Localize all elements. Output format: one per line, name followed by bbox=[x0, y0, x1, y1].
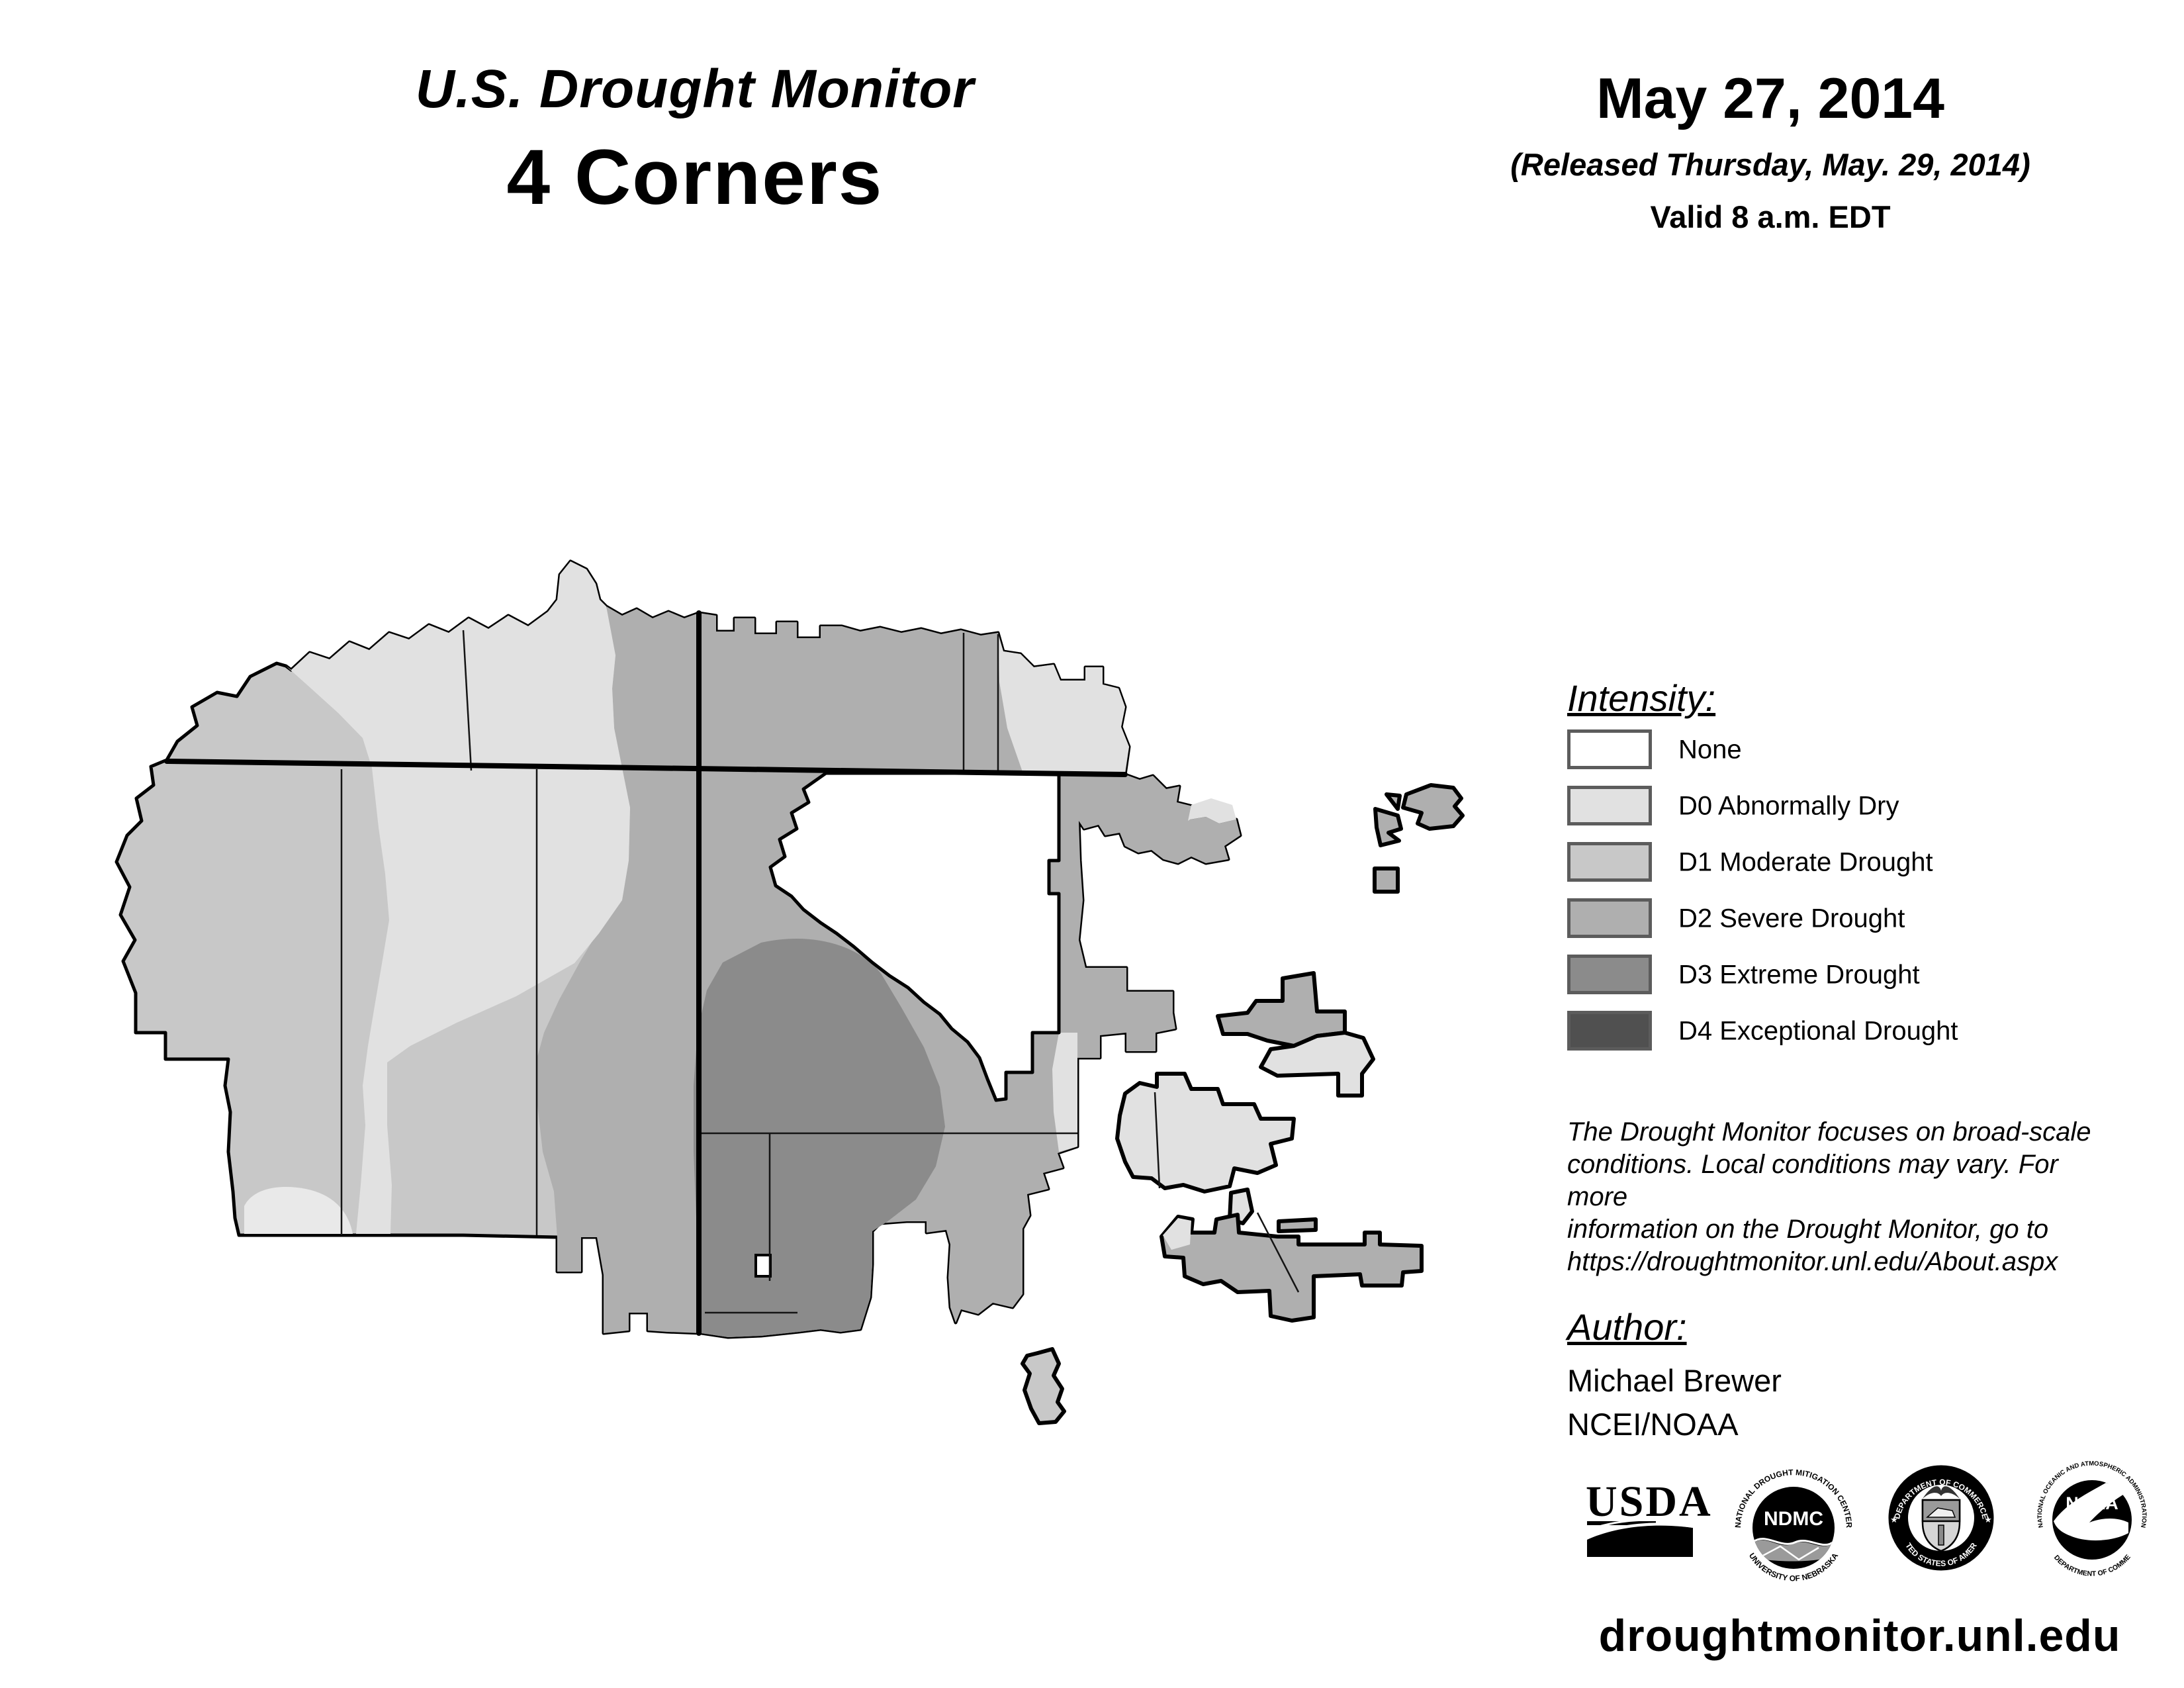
map-d0-patch-northeast bbox=[998, 634, 1129, 772]
disclaimer-line: conditions. Local conditions may vary. F… bbox=[1567, 1149, 2123, 1213]
legend-label: D0 Abnormally Dry bbox=[1678, 792, 1899, 821]
noaa-wordmark: NOAA bbox=[2066, 1493, 2118, 1513]
legend-label: D3 Extreme Drought bbox=[1678, 961, 1920, 990]
usda-wordmark: USDA bbox=[1586, 1477, 1713, 1526]
island-ne-square bbox=[1375, 868, 1398, 892]
legend-label: D2 Severe Drought bbox=[1678, 904, 1905, 934]
author-org: NCEI/NOAA bbox=[1567, 1406, 1739, 1442]
usda-logo: USDA bbox=[1586, 1477, 1713, 1557]
map-white-notch bbox=[756, 1255, 770, 1276]
author-name: Michael Brewer bbox=[1567, 1362, 1782, 1399]
island-ne-arrow bbox=[1375, 809, 1401, 845]
island-bar bbox=[1279, 1219, 1316, 1231]
commerce-lighthouse-icon bbox=[1938, 1525, 1944, 1545]
detached-regions bbox=[1023, 785, 1463, 1423]
footer-url: droughtmonitor.unl.edu bbox=[1542, 1610, 2177, 1662]
island-ne-blob bbox=[1403, 785, 1463, 829]
usda-swoosh-icon bbox=[1587, 1526, 1693, 1557]
legend-heading: Intensity: bbox=[1567, 677, 1715, 720]
legend-swatch-d4 bbox=[1567, 1011, 1652, 1051]
disclaimer-line: https://droughtmonitor.unl.edu/About.asp… bbox=[1567, 1246, 2123, 1278]
legend-label: None bbox=[1678, 735, 1742, 765]
legend-label: D4 Exceptional Drought bbox=[1678, 1017, 1958, 1047]
drought-map bbox=[0, 0, 2184, 1688]
legend-swatch-d3 bbox=[1567, 955, 1652, 994]
author-heading: Author: bbox=[1567, 1305, 1687, 1348]
island-south-small bbox=[1023, 1349, 1064, 1423]
disclaimer-line: information on the Drought Monitor, go t… bbox=[1567, 1213, 2123, 1246]
commerce-star-right: ★ bbox=[1984, 1515, 1992, 1524]
ndmc-seal: NATIONAL DROUGHT MITIGATION CENTER UNIVE… bbox=[1733, 1468, 1854, 1583]
ndmc-wordmark: NDMC bbox=[1764, 1508, 1823, 1530]
legend-swatch-none bbox=[1567, 729, 1652, 769]
disclaimer-text: The Drought Monitor focuses on broad-sca… bbox=[1567, 1116, 2123, 1278]
commerce-star-left: ★ bbox=[1890, 1515, 1898, 1524]
disclaimer-line: The Drought Monitor focuses on broad-sca… bbox=[1567, 1116, 2123, 1149]
drought-monitor-poster: { "header": { "title_line1": "U.S. Droug… bbox=[0, 0, 2184, 1688]
legend-swatch-d0 bbox=[1567, 786, 1652, 825]
legend-label: D1 Moderate Drought bbox=[1678, 848, 1933, 878]
island-d0-large bbox=[1117, 1074, 1294, 1192]
legend-swatch-d2 bbox=[1567, 898, 1652, 938]
legend-swatch-d1 bbox=[1567, 842, 1652, 882]
island-ne-sliver bbox=[1387, 794, 1400, 809]
agency-seals: USDA NATIONAL DROUGHT MITIGATION CENTER … bbox=[1555, 1456, 2184, 1602]
